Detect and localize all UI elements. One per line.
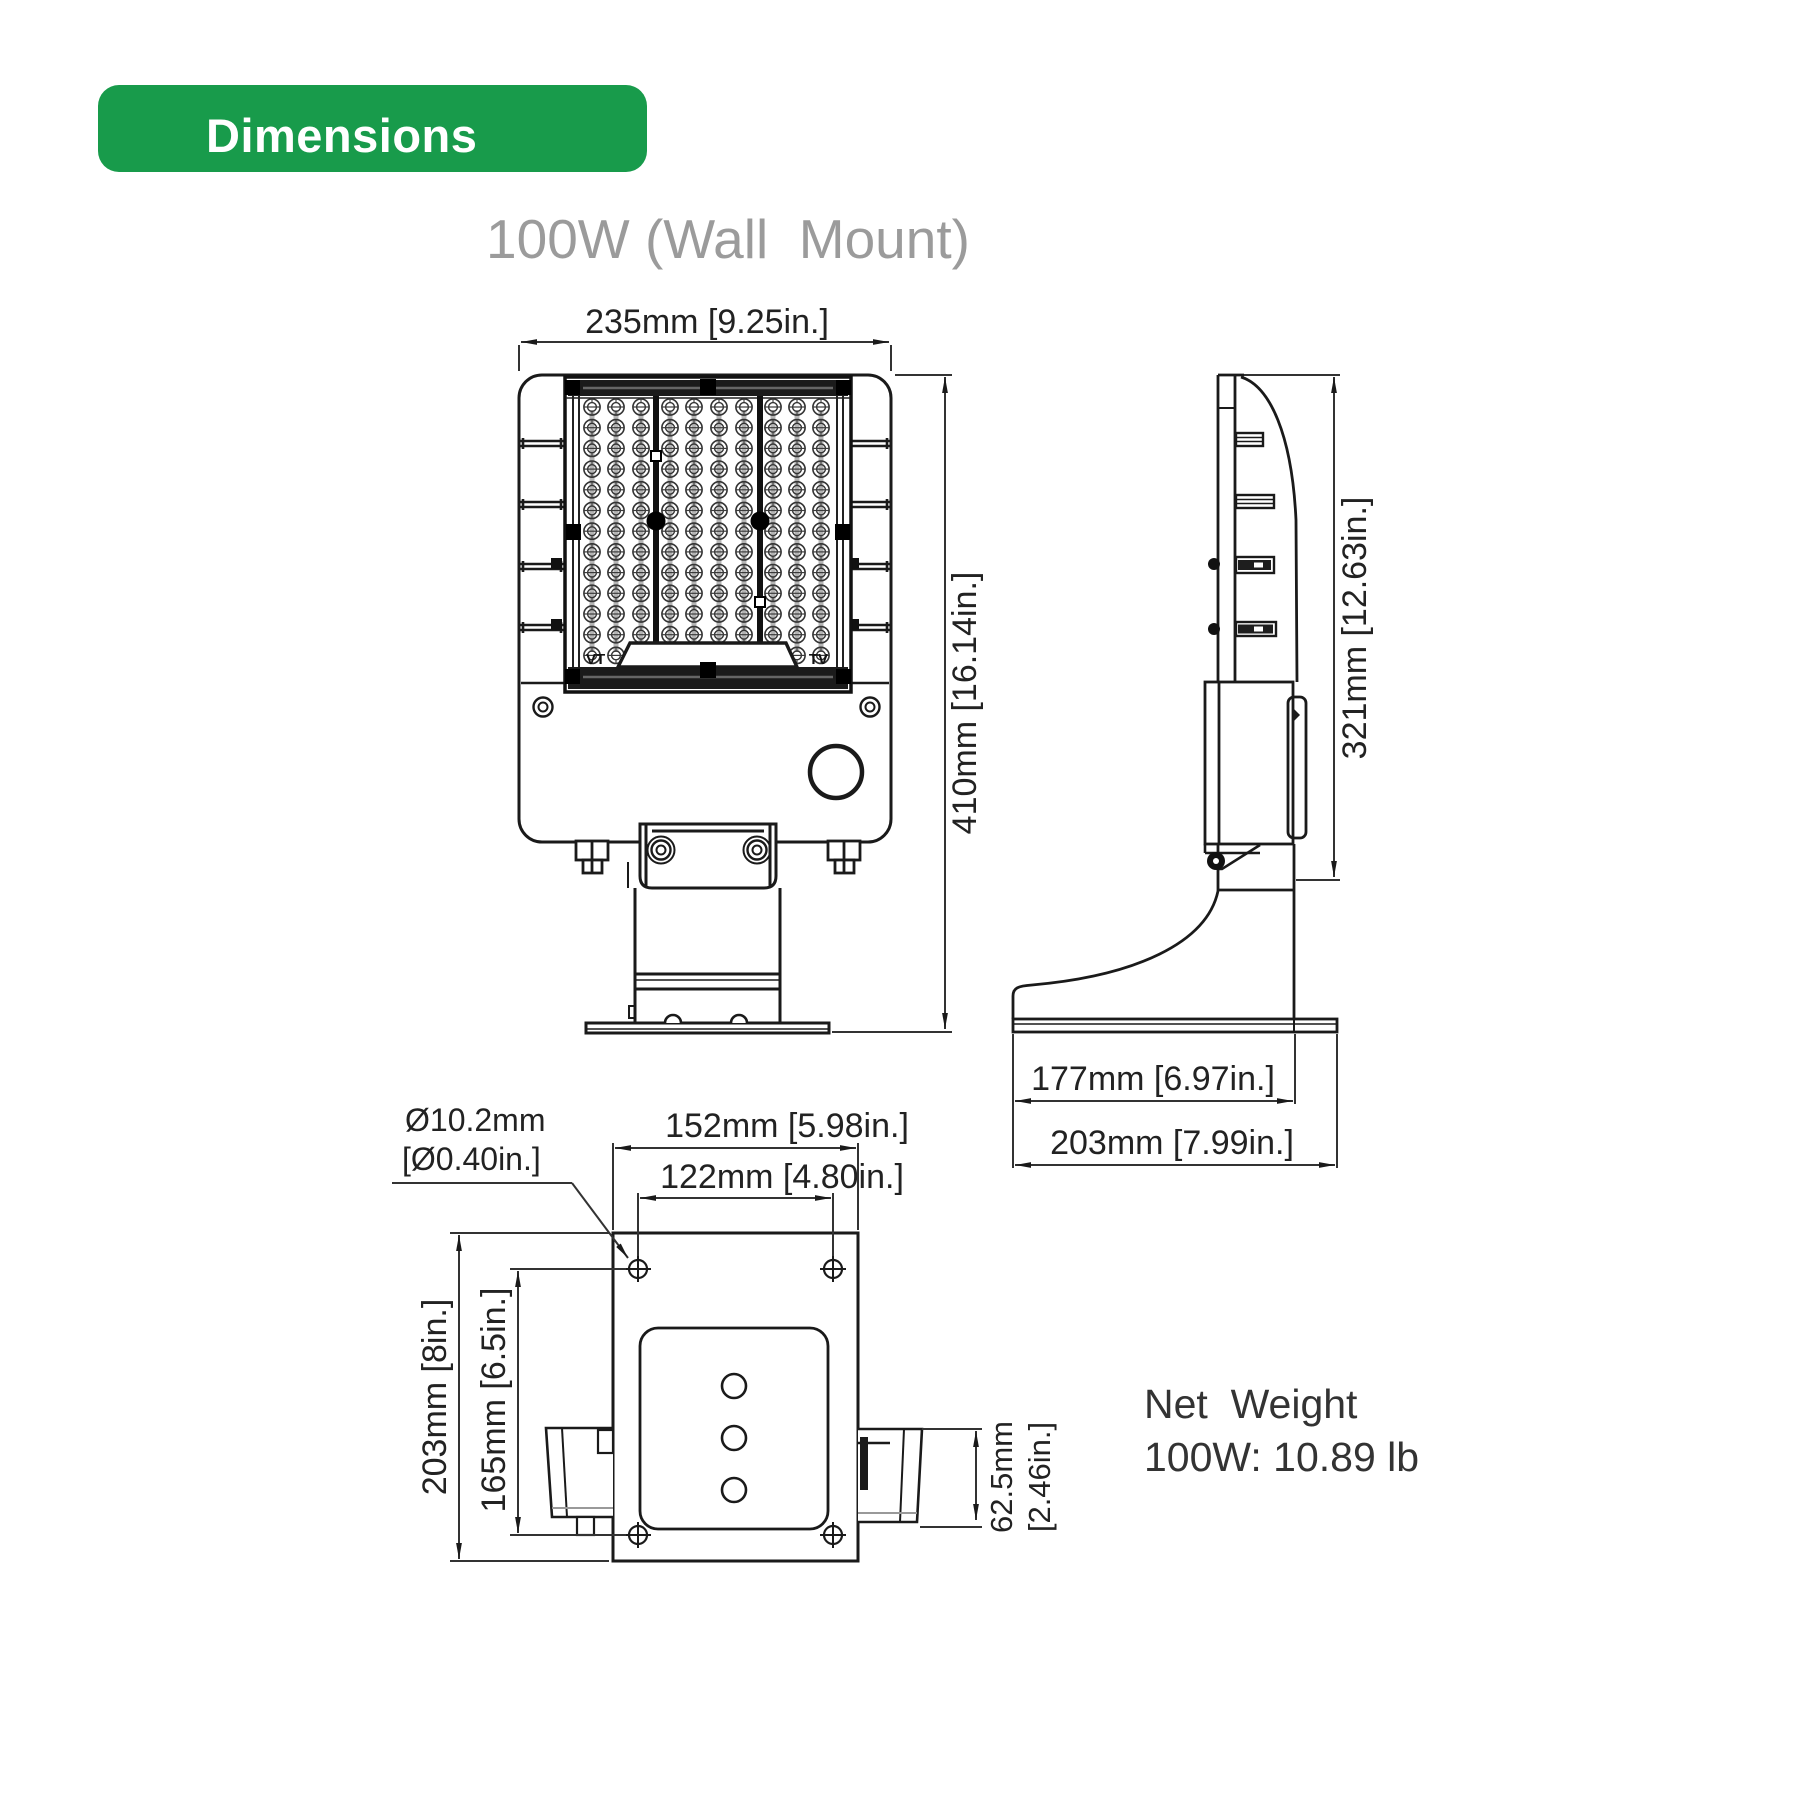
svg-text:410mm [16.14in.]: 410mm [16.14in.] — [946, 572, 984, 835]
svg-text:203mm [8in.]: 203mm [8in.] — [416, 1299, 454, 1496]
svg-text:203mm [7.99in.]: 203mm [7.99in.] — [1050, 1124, 1294, 1162]
svg-text:100W: 10.89 lb: 100W: 10.89 lb — [1144, 1434, 1419, 1480]
svg-text:321mm [12.63in.]: 321mm [12.63in.] — [1336, 497, 1374, 760]
svg-text:177mm [6.97in.]: 177mm [6.97in.] — [1031, 1060, 1275, 1098]
svg-text:[2.46in.]: [2.46in.] — [1022, 1422, 1057, 1532]
svg-text:Net Weight: Net Weight — [1144, 1381, 1358, 1427]
svg-text:122mm [4.80in.]: 122mm [4.80in.] — [660, 1158, 904, 1196]
svg-text:152mm [5.98in.]: 152mm [5.98in.] — [665, 1107, 909, 1145]
svg-text:TV: TV — [809, 651, 828, 668]
svg-text:[Ø0.40in.]: [Ø0.40in.] — [402, 1141, 541, 1177]
svg-text:235mm [9.25in.]: 235mm [9.25in.] — [585, 303, 829, 341]
svg-text:100W (Wall Mount): 100W (Wall Mount) — [486, 208, 970, 270]
svg-text:62.5mm: 62.5mm — [984, 1421, 1019, 1533]
svg-text:Ø10.2mm: Ø10.2mm — [405, 1102, 545, 1138]
svg-text:Dimensions: Dimensions — [206, 109, 477, 162]
svg-text:VT: VT — [586, 651, 605, 668]
svg-text:165mm [6.5in.]: 165mm [6.5in.] — [475, 1288, 513, 1513]
